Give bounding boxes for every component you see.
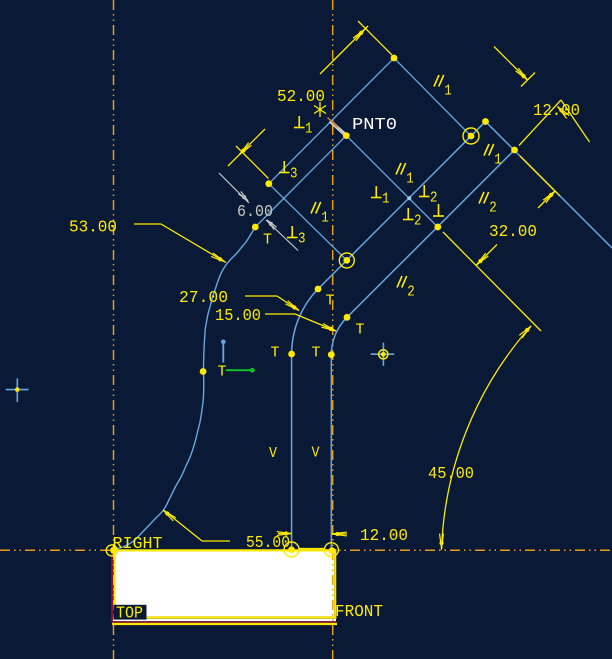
- svg-text:1: 1: [321, 211, 329, 227]
- svg-text:PNT0: PNT0: [352, 115, 397, 134]
- svg-text:3: 3: [298, 232, 306, 248]
- svg-text:T: T: [356, 322, 365, 339]
- svg-text:V: V: [312, 445, 320, 462]
- svg-text:1: 1: [382, 192, 390, 208]
- svg-text:2: 2: [489, 201, 497, 217]
- svg-text:2: 2: [414, 214, 422, 230]
- svg-text:52.00: 52.00: [277, 87, 325, 106]
- svg-text:RIGHT: RIGHT: [113, 534, 163, 553]
- svg-text:T: T: [218, 364, 227, 381]
- svg-text:2: 2: [430, 191, 438, 207]
- svg-text:T: T: [271, 345, 280, 362]
- svg-text:V: V: [269, 445, 277, 462]
- svg-text:12.00: 12.00: [533, 101, 580, 120]
- svg-text:1: 1: [494, 153, 502, 169]
- svg-text:3: 3: [290, 167, 298, 183]
- svg-text:15.00: 15.00: [215, 306, 261, 325]
- svg-text:55.00: 55.00: [246, 533, 290, 552]
- svg-text:1: 1: [406, 172, 414, 188]
- svg-text:2: 2: [407, 285, 415, 301]
- svg-text:27.00: 27.00: [179, 288, 228, 307]
- svg-text:1: 1: [305, 122, 313, 138]
- svg-text:6.00: 6.00: [237, 202, 273, 221]
- svg-text:T: T: [312, 345, 321, 362]
- svg-text:32.00: 32.00: [489, 222, 537, 241]
- svg-text:1: 1: [444, 84, 452, 100]
- svg-text:TOP: TOP: [116, 604, 143, 623]
- svg-text:FRONT: FRONT: [335, 602, 383, 621]
- svg-text:T: T: [326, 293, 335, 310]
- svg-text:45.00: 45.00: [428, 464, 474, 483]
- svg-text:12.00: 12.00: [360, 526, 408, 545]
- svg-text:T: T: [263, 232, 272, 249]
- svg-text:53.00: 53.00: [69, 218, 117, 237]
